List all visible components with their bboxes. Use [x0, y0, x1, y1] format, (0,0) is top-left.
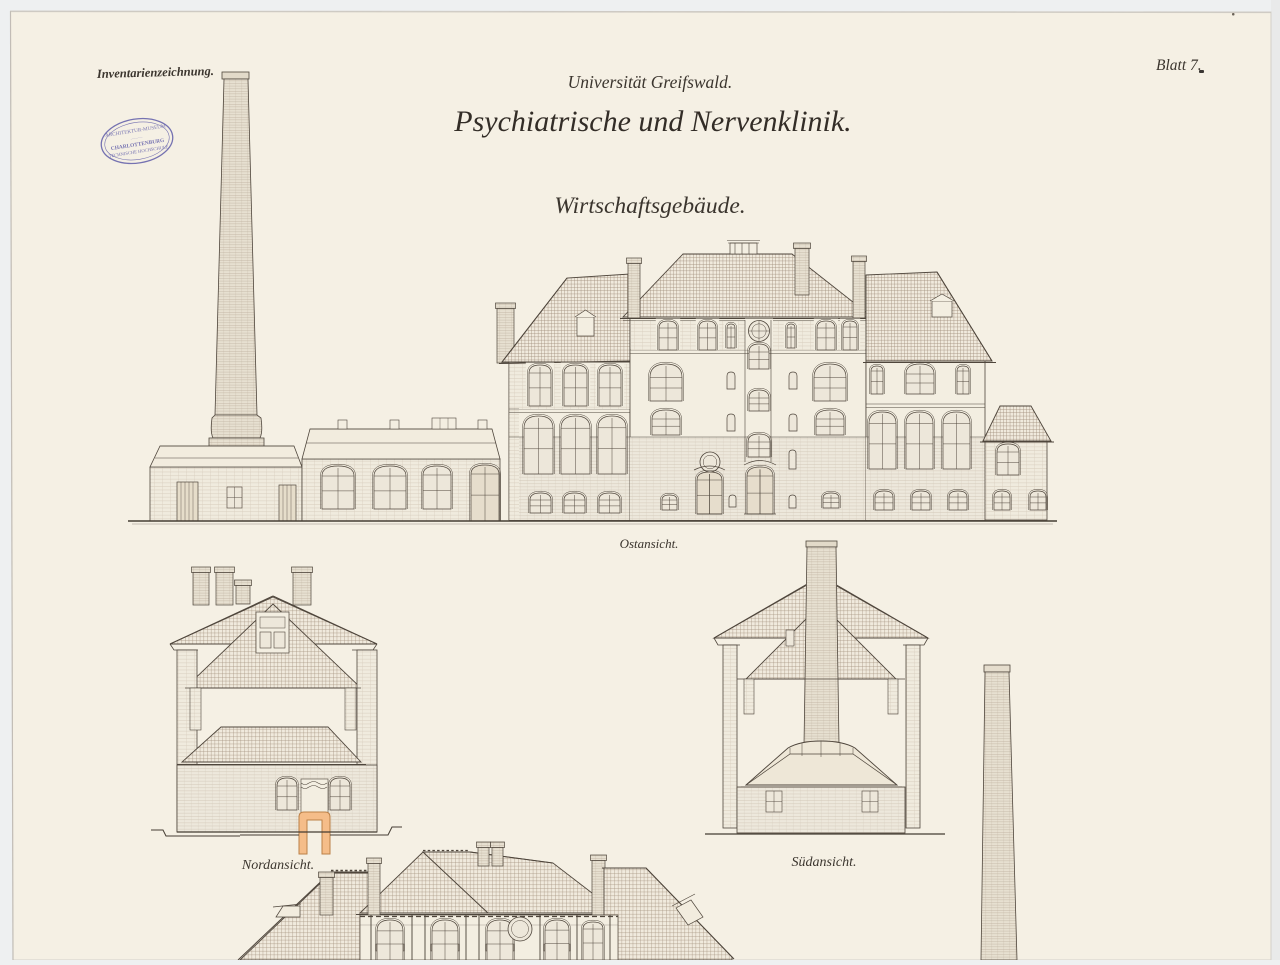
svg-text:Ostansicht.: Ostansicht.	[620, 536, 679, 551]
svg-text:Südansicht.: Südansicht.	[792, 855, 857, 870]
svg-text:Wirtschaftsgebäude.: Wirtschaftsgebäude.	[554, 193, 745, 219]
svg-text:Blatt 7.: Blatt 7.	[1156, 57, 1202, 74]
svg-text:Universität Greifswald.: Universität Greifswald.	[568, 72, 733, 92]
svg-text:Psychiatrische und Nervenklini: Psychiatrische und Nervenklinik.	[453, 105, 851, 138]
svg-text:Nordansicht.: Nordansicht.	[241, 858, 314, 873]
